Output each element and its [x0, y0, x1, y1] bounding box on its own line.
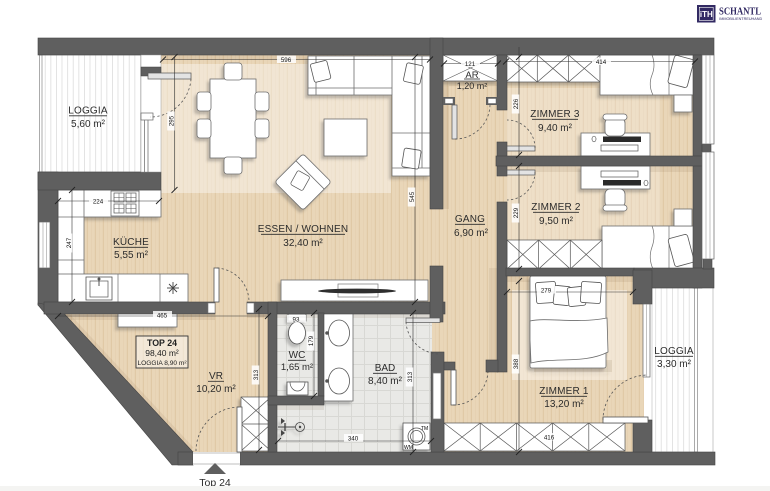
svg-text:1,20 m²: 1,20 m² [457, 81, 488, 91]
svg-text:388: 388 [513, 358, 520, 369]
svg-text:416: 416 [544, 434, 555, 441]
svg-text:5,60 m²: 5,60 m² [71, 119, 106, 130]
svg-text:LOGGIA: LOGGIA [68, 106, 108, 117]
svg-text:224: 224 [93, 198, 104, 205]
svg-text:8,40 m²: 8,40 m² [368, 376, 403, 387]
svg-text:6,90 m²: 6,90 m² [454, 228, 489, 239]
svg-text:93: 93 [293, 316, 300, 323]
svg-text:10,20 m²: 10,20 m² [196, 384, 236, 395]
svg-text:3,30 m²: 3,30 m² [657, 359, 692, 370]
svg-text:279: 279 [541, 287, 552, 294]
svg-text:545: 545 [409, 191, 416, 202]
svg-text:13,20 m²: 13,20 m² [544, 399, 584, 410]
svg-text:KÜCHE: KÜCHE [113, 236, 149, 248]
svg-text:BAD: BAD [375, 363, 396, 374]
svg-text:229: 229 [513, 207, 520, 218]
svg-text:ESSEN / WOHNEN: ESSEN / WOHNEN [258, 224, 349, 235]
svg-text:465: 465 [157, 312, 168, 319]
svg-text:ZIMMER 2: ZIMMER 2 [531, 202, 581, 213]
svg-text:VR: VR [209, 371, 223, 382]
svg-text:TOP 24: TOP 24 [147, 338, 177, 348]
svg-text:WC: WC [289, 350, 306, 361]
svg-text:IMMOBILIENTREUHAND: IMMOBILIENTREUHAND [719, 17, 763, 21]
svg-text:GANG: GANG [455, 214, 485, 225]
svg-text:WM: WM [404, 445, 413, 451]
svg-text:32,40 m²: 32,40 m² [283, 238, 323, 249]
svg-text:313: 313 [253, 369, 260, 380]
svg-text:596: 596 [281, 57, 292, 64]
svg-text:9,50 m²: 9,50 m² [539, 216, 574, 227]
svg-text:ZIMMER 3: ZIMMER 3 [530, 109, 580, 120]
svg-text:1,65 m²: 1,65 m² [281, 362, 313, 373]
svg-text:313: 313 [407, 371, 414, 382]
svg-text:247: 247 [66, 237, 73, 248]
svg-text:5,55 m²: 5,55 m² [114, 250, 149, 261]
svg-text:121: 121 [465, 61, 476, 68]
svg-text:414: 414 [596, 59, 607, 66]
svg-text:LOGGIA: LOGGIA [654, 346, 694, 357]
svg-text:295: 295 [169, 115, 176, 126]
svg-text:SCHANTL: SCHANTL [719, 7, 761, 18]
svg-text:ZIMMER 1: ZIMMER 1 [539, 386, 589, 397]
svg-text:iTH: iTH [700, 10, 713, 19]
svg-text:TM: TM [421, 426, 428, 432]
svg-text:340: 340 [348, 435, 359, 442]
svg-text:LOGGIA 8,90 m²: LOGGIA 8,90 m² [137, 360, 187, 367]
svg-text:226: 226 [513, 98, 520, 109]
svg-text:179: 179 [308, 335, 315, 346]
svg-text:98,40 m²: 98,40 m² [145, 348, 179, 358]
svg-text:9,40 m²: 9,40 m² [538, 123, 573, 134]
